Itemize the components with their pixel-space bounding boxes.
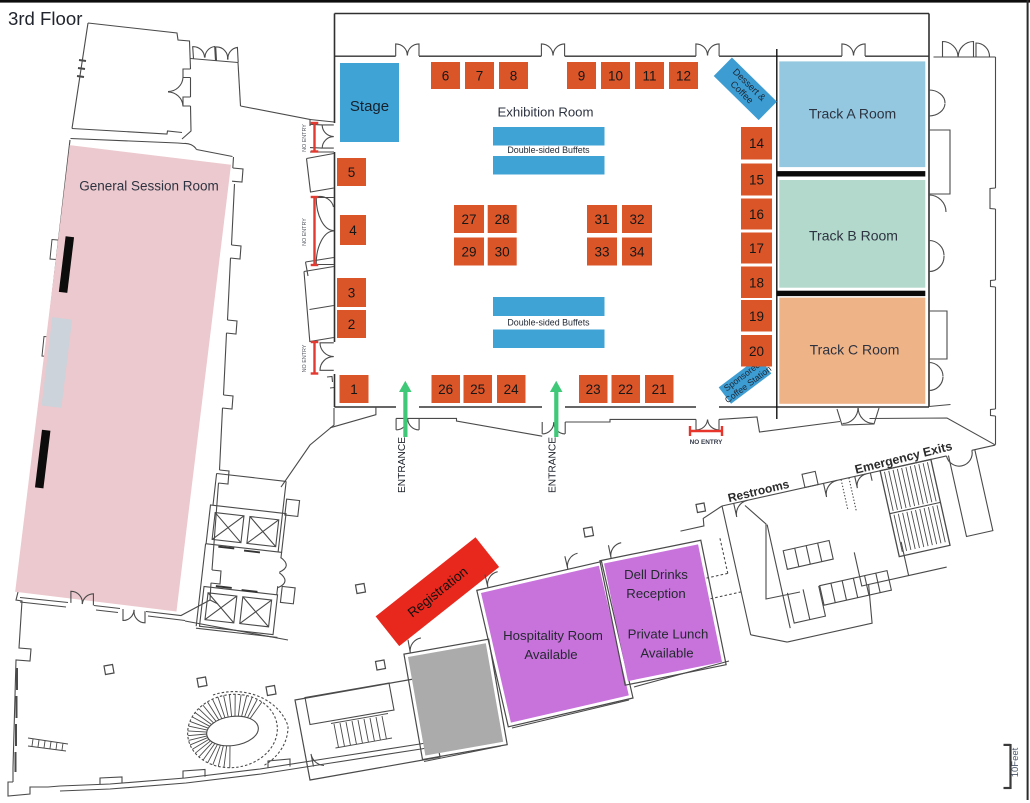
svg-text:1: 1 bbox=[350, 382, 358, 397]
svg-text:22: 22 bbox=[618, 382, 633, 397]
svg-text:15: 15 bbox=[749, 173, 764, 188]
svg-text:Exhibition Room: Exhibition Room bbox=[497, 105, 593, 120]
svg-text:34: 34 bbox=[629, 245, 645, 260]
svg-text:23: 23 bbox=[586, 382, 601, 397]
svg-text:ENTRANCE: ENTRANCE bbox=[548, 437, 559, 493]
svg-text:Hospitality Room: Hospitality Room bbox=[503, 628, 603, 643]
svg-text:5: 5 bbox=[348, 165, 356, 180]
svg-text:Track B Room: Track B Room bbox=[809, 228, 898, 244]
svg-text:Available: Available bbox=[524, 647, 577, 662]
svg-text:Track A Room: Track A Room bbox=[809, 106, 896, 122]
svg-text:Stage: Stage bbox=[350, 98, 389, 115]
svg-text:32: 32 bbox=[629, 212, 644, 227]
svg-text:8: 8 bbox=[510, 69, 518, 84]
svg-text:General Session Room: General Session Room bbox=[79, 179, 219, 194]
svg-text:9: 9 bbox=[578, 69, 586, 84]
svg-text:4: 4 bbox=[349, 223, 357, 238]
svg-text:Track C Room: Track C Room bbox=[810, 342, 900, 358]
svg-text:Available: Available bbox=[640, 646, 693, 661]
svg-text:Private Lunch: Private Lunch bbox=[628, 627, 709, 642]
svg-text:Double-sided Buffets: Double-sided Buffets bbox=[507, 145, 590, 155]
svg-text:17: 17 bbox=[749, 241, 764, 256]
svg-text:Dell Drinks: Dell Drinks bbox=[624, 567, 688, 582]
svg-text:Reception: Reception bbox=[626, 586, 685, 601]
svg-text:NO ENTRY: NO ENTRY bbox=[690, 439, 724, 446]
svg-text:29: 29 bbox=[461, 245, 476, 260]
svg-text:ENTRANCE: ENTRANCE bbox=[397, 437, 408, 493]
svg-text:3rd Floor: 3rd Floor bbox=[8, 8, 82, 29]
svg-text:31: 31 bbox=[594, 212, 609, 227]
svg-text:19: 19 bbox=[749, 309, 764, 324]
svg-text:21: 21 bbox=[652, 382, 667, 397]
svg-text:7: 7 bbox=[476, 69, 484, 84]
svg-text:14: 14 bbox=[749, 136, 765, 151]
svg-text:10: 10 bbox=[608, 69, 623, 84]
svg-text:NO ENTRY: NO ENTRY bbox=[302, 218, 308, 246]
svg-text:10Feet: 10Feet bbox=[1010, 747, 1021, 777]
svg-text:30: 30 bbox=[495, 245, 510, 260]
svg-text:Restrooms: Restrooms bbox=[726, 477, 791, 505]
svg-text:26: 26 bbox=[438, 382, 453, 397]
svg-text:18: 18 bbox=[749, 276, 764, 291]
svg-text:25: 25 bbox=[470, 382, 485, 397]
svg-text:16: 16 bbox=[749, 207, 764, 222]
svg-text:20: 20 bbox=[749, 344, 764, 359]
svg-text:27: 27 bbox=[461, 212, 476, 227]
svg-text:12: 12 bbox=[676, 69, 691, 84]
svg-text:24: 24 bbox=[504, 382, 520, 397]
svg-text:28: 28 bbox=[495, 212, 510, 227]
svg-text:NO ENTRY: NO ENTRY bbox=[302, 124, 308, 152]
svg-text:3: 3 bbox=[348, 286, 356, 301]
svg-text:Double-sided Buffets: Double-sided Buffets bbox=[507, 318, 590, 328]
svg-text:33: 33 bbox=[594, 245, 609, 260]
svg-text:NO ENTRY: NO ENTRY bbox=[302, 344, 308, 372]
svg-text:6: 6 bbox=[442, 69, 450, 84]
svg-text:2: 2 bbox=[348, 317, 356, 332]
svg-text:11: 11 bbox=[642, 69, 656, 84]
